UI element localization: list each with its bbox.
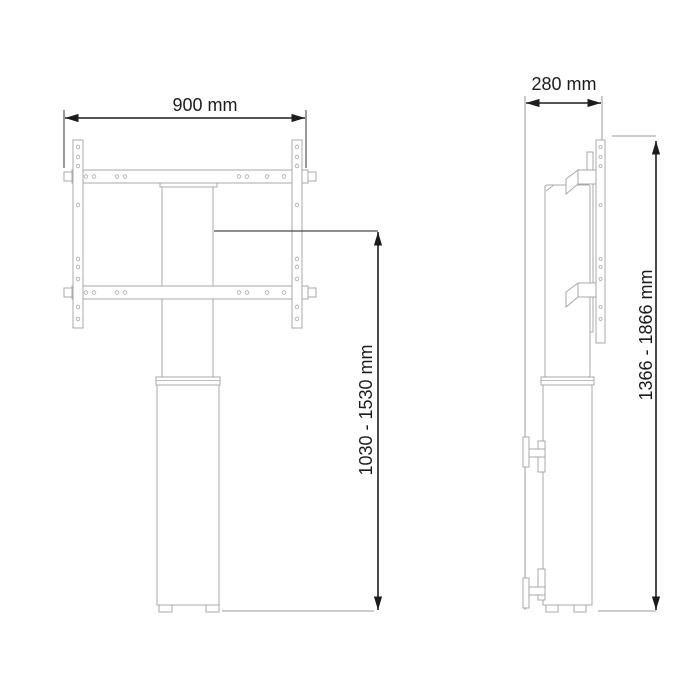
wall-bracket-upper-plate <box>523 437 529 467</box>
hole <box>599 318 602 321</box>
hole <box>245 291 249 295</box>
hole <box>599 204 602 207</box>
wall-bracket-upper-arm <box>529 449 545 457</box>
hole <box>84 291 88 295</box>
crossbar-bottom-left-tab <box>64 288 72 297</box>
wall-bracket-lower-plate <box>523 578 529 608</box>
front-foot-left <box>159 605 172 612</box>
hole <box>599 266 602 269</box>
hole <box>599 165 602 168</box>
wall-bracket-upper <box>523 437 545 472</box>
hole <box>115 175 119 179</box>
front-width-dimension: 900 mm <box>64 95 306 168</box>
hole <box>295 277 299 281</box>
hole <box>76 257 80 261</box>
hole <box>76 265 80 269</box>
hole <box>295 317 299 321</box>
side-height-dimension: 1366 - 1866 mm <box>598 136 656 611</box>
hole <box>76 203 80 207</box>
front-view: 900 mm <box>64 95 378 612</box>
hole <box>295 164 299 168</box>
hole <box>123 175 127 179</box>
side-column-collar <box>541 377 594 385</box>
hole <box>84 175 88 179</box>
hole <box>295 203 299 207</box>
front-foot-right <box>206 605 219 612</box>
hole <box>92 175 96 179</box>
hole <box>282 175 286 179</box>
hole <box>295 257 299 261</box>
side-inner-column <box>545 185 590 377</box>
side-height-label: 1366 - 1866 mm <box>636 269 656 400</box>
side-outer-column <box>543 385 592 605</box>
hole <box>245 175 249 179</box>
outer-column <box>157 385 219 605</box>
side-foot-front <box>546 605 558 612</box>
crossbar-bottom <box>72 286 308 299</box>
technical-drawing: 900 mm <box>0 0 700 700</box>
crossbar-bottom-right-tab <box>308 288 316 297</box>
side-foot-back <box>574 605 586 612</box>
wall-bracket-lower-arm <box>529 587 545 595</box>
hole <box>599 156 602 159</box>
front-width-label: 900 mm <box>172 95 237 115</box>
side-depth-label: 280 mm <box>531 74 596 94</box>
hole <box>599 306 602 309</box>
hole <box>295 155 299 159</box>
inner-column <box>162 187 213 377</box>
crossbar-top-right-tab <box>308 172 316 181</box>
hole <box>237 291 241 295</box>
hole <box>76 317 80 321</box>
side-rail-plate <box>596 140 605 343</box>
hole <box>265 175 269 179</box>
hole <box>295 305 299 309</box>
hole <box>123 291 127 295</box>
hole <box>76 277 80 281</box>
front-height-label: 1030 - 1530 mm <box>356 344 376 475</box>
crossbar-top-left-tab <box>64 172 72 181</box>
hole <box>76 145 80 149</box>
side-crossbar-bottom-end <box>578 283 596 297</box>
hole <box>237 175 241 179</box>
hole <box>295 145 299 149</box>
side-crossbar-top-end <box>578 170 596 184</box>
hole <box>282 291 286 295</box>
hole <box>115 291 119 295</box>
hole <box>265 291 269 295</box>
hole <box>76 305 80 309</box>
hole <box>599 146 602 149</box>
hole <box>295 265 299 269</box>
hole <box>76 155 80 159</box>
hole <box>92 291 96 295</box>
hole <box>599 278 602 281</box>
side-view: 280 mm <box>523 74 656 612</box>
outer-column-collar <box>156 377 220 385</box>
hole <box>76 164 80 168</box>
wall-bracket-lower <box>523 569 545 608</box>
crossbar-top <box>72 170 308 183</box>
hole <box>599 258 602 261</box>
